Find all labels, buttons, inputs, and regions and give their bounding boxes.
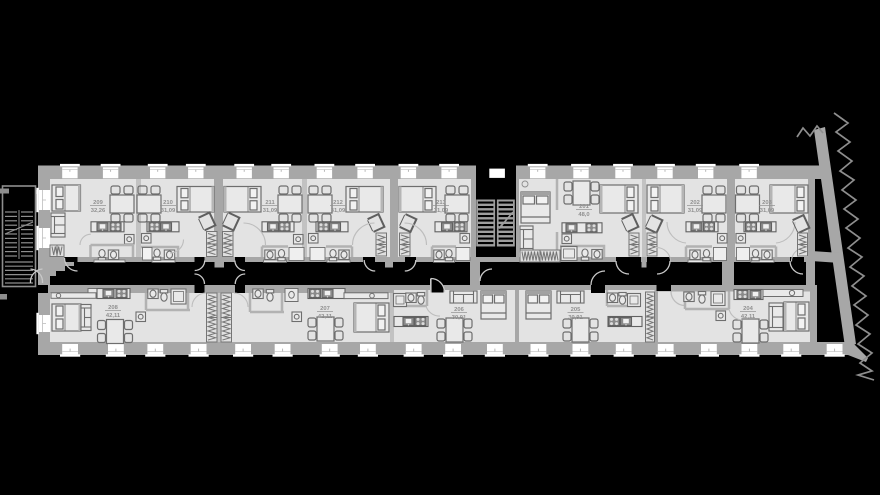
svg-text:210: 210 [163,200,173,206]
svg-text:31,09: 31,09 [331,208,346,214]
svg-text:42,11: 42,11 [741,314,756,320]
svg-text:201: 201 [579,204,589,210]
svg-text:31,09: 31,09 [263,208,278,214]
svg-text:31,09: 31,09 [434,208,449,214]
svg-text:204: 204 [743,306,753,312]
svg-text:31,09: 31,09 [760,208,775,214]
svg-text:48,0: 48,0 [578,212,589,218]
svg-text:42,11: 42,11 [318,314,333,320]
svg-text:31,09: 31,09 [688,208,703,214]
svg-text:205: 205 [571,307,581,313]
svg-text:42,11: 42,11 [106,313,121,319]
svg-text:206: 206 [454,307,464,313]
svg-text:208: 208 [108,305,118,311]
svg-text:30,91: 30,91 [568,315,583,321]
svg-text:30,91: 30,91 [452,315,467,321]
svg-text:209: 209 [93,200,103,206]
svg-text:211: 211 [265,200,275,206]
svg-text:202: 202 [690,200,700,206]
svg-text:32,26: 32,26 [91,208,106,214]
svg-text:212: 212 [333,200,343,206]
svg-text:203: 203 [762,200,772,206]
svg-text:213: 213 [436,200,446,206]
svg-text:31,09: 31,09 [161,208,176,214]
svg-text:207: 207 [320,306,330,312]
